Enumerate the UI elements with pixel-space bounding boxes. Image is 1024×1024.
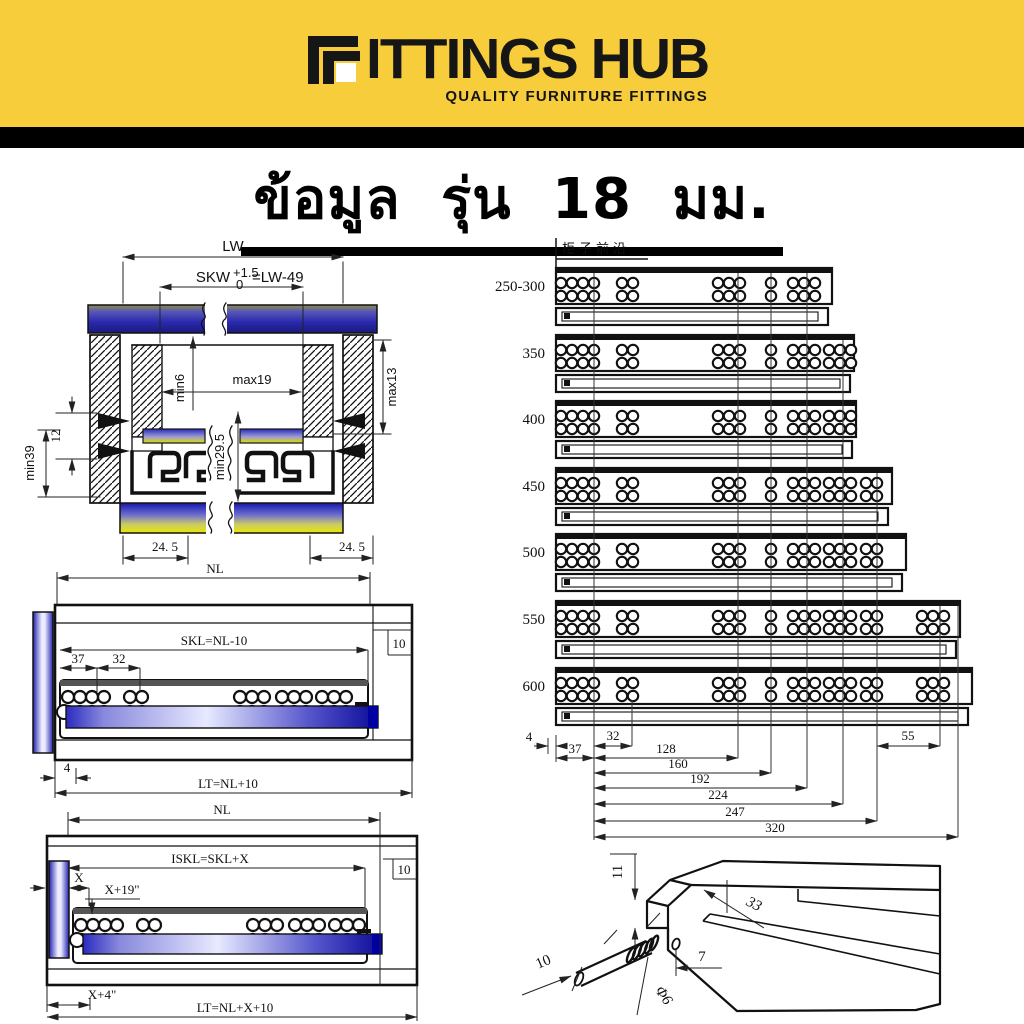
spec-sheet-page: ITTINGS HUB QUALITY FURNITURE FITTINGS ข… [0,0,1024,1024]
dim-skw: SKW [196,269,231,286]
dim-nl: NL [206,561,223,576]
dim-7: 7 [698,949,706,965]
drawer-front-panel [33,612,53,753]
drawer-side-left [132,345,162,437]
dim-128: 128 [656,741,676,756]
row-label-550: 550 [523,612,546,628]
dim-max13: max13 [384,367,399,406]
dim-24-5-right: 24. 5 [339,539,365,554]
dim-iskl: ISKL=SKL+X [171,851,249,866]
length-chart: 柜子前沿 250-300 350 400 450 500 550 600 [495,238,972,840]
dim-320: 320 [765,820,785,835]
slide-inner-rail [66,706,378,728]
technical-diagram: LW SKW +1.5 0 =LW-49 min6 max19 max13 12… [0,0,1024,1024]
fixing-pin [573,935,660,987]
row-label-350: 350 [523,346,546,362]
dim-skl: SKL=NL-10 [181,633,248,648]
dim-10: 10 [398,862,411,877]
top-panel [88,305,377,333]
dim-min29-5: min29.5 [212,434,227,480]
dim-max19: max19 [232,372,271,387]
row-label-450: 450 [523,479,546,495]
dim-lt: LT=NL+X+10 [197,1000,273,1015]
cross-section-drawing: LW SKW +1.5 0 =LW-49 min6 max19 max13 12… [22,238,399,564]
row-label-400: 400 [523,412,546,428]
dim-4: 4 [64,760,71,775]
slide-length-variant [556,601,960,658]
row-label-500: 500 [523,545,546,561]
dim-12: 12 [48,430,63,443]
dim-10: 10 [533,952,553,973]
drawer-side-right [303,345,333,437]
row-label-250-300: 250-300 [495,279,545,295]
dim-min39: min39 [22,445,37,480]
dim-32: 32 [113,651,126,666]
cabinet-front-edge-label: 柜子前沿 [562,241,630,257]
pin-detail-drawing: 11 33 7 10 Φ6 [522,854,940,1015]
dim-x-plus-19: X+19" [104,882,139,897]
slide-length-variant [556,534,906,591]
dim-37: 37 [72,651,86,666]
slide-inner-rail [83,934,382,954]
slide-profile-strip [240,429,303,443]
slide-length-variant [556,468,892,525]
slide-length-variant [556,668,972,725]
slide-length-variant [556,268,832,325]
dim-phi6: Φ6 [651,983,675,1008]
drawer-front-panel-inset [49,861,69,958]
dim-247: 247 [725,804,745,819]
slide-length-variant [556,335,856,392]
side-view-drawing: NL SKL=NL-10 37 32 10 4 LT=NL+10 [33,561,412,798]
dim-160: 160 [668,756,688,771]
dim-24-5-left: 24. 5 [152,539,178,554]
dim-lt: LT=NL+10 [198,776,258,791]
dim-nl: NL [213,802,230,817]
dim-11: 11 [610,865,626,879]
dim-192: 192 [690,771,710,786]
inset-view-drawing: NL ISKL=SKL+X X X+19" 10 X+4" LT=NL+X+10 [30,802,417,1021]
dim-min6: min6 [172,374,187,402]
dim-x: X [74,870,84,885]
dim-skw-eq: =LW-49 [252,269,304,286]
dim-lw: LW [222,238,244,255]
dim-37: 37 [569,741,583,756]
dim-10: 10 [393,636,406,651]
dim-x-plus-4: X+4" [88,987,117,1002]
length-chart-dim-lines [534,746,958,837]
drawer-panel-block [647,861,940,1011]
length-rows [548,268,972,840]
row-label-600: 600 [523,679,546,695]
dim-skw-tol-zero: 0 [236,277,243,292]
dim-55: 55 [902,728,915,743]
dim-4: 4 [526,729,533,744]
dim-224: 224 [708,787,728,802]
slide-length-variant [556,401,856,458]
dim-32: 32 [607,728,620,743]
slide-profile-strip [143,429,205,443]
